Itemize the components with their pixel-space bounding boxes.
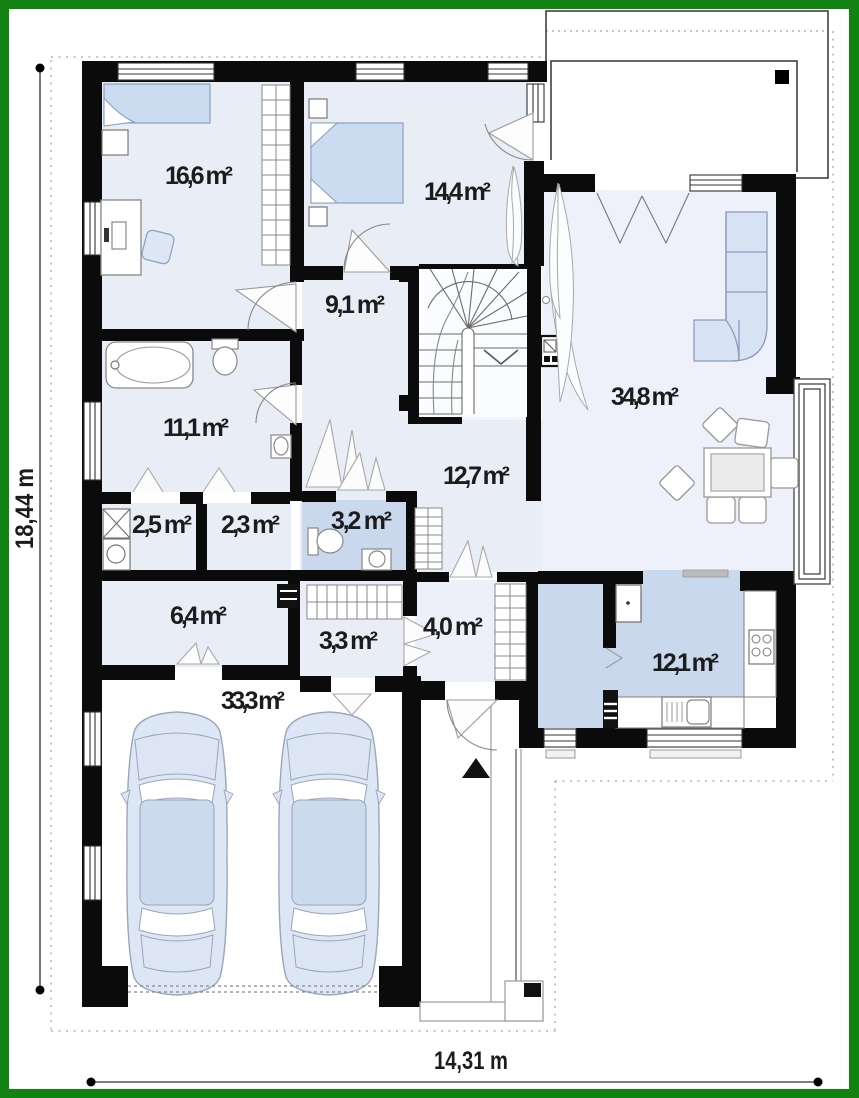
svg-text:12,7 m²: 12,7 m² [443,462,510,490]
svg-text:4,0 m²: 4,0 m² [423,613,483,641]
svg-text:18,44 m: 18,44 m [11,468,39,549]
svg-text:14,31 m: 14,31 m [434,1047,508,1075]
svg-text:34,8 m²: 34,8 m² [611,383,679,411]
svg-text:16,6 m²: 16,6 m² [165,162,233,190]
svg-text:33,3 m²: 33,3 m² [221,687,285,715]
svg-text:3,2 m²: 3,2 m² [331,507,392,535]
svg-text:3,3 m²: 3,3 m² [319,627,378,655]
svg-text:2,3 m²: 2,3 m² [221,511,280,539]
svg-text:12,1 m²: 12,1 m² [652,649,719,677]
svg-text:2,5 m²: 2,5 m² [132,511,192,539]
svg-text:11,1 m²: 11,1 m² [163,414,229,442]
svg-text:9,1 m²: 9,1 m² [325,291,385,319]
svg-text:14,4 m²: 14,4 m² [424,178,491,206]
svg-text:6,4 m²: 6,4 m² [170,602,227,630]
